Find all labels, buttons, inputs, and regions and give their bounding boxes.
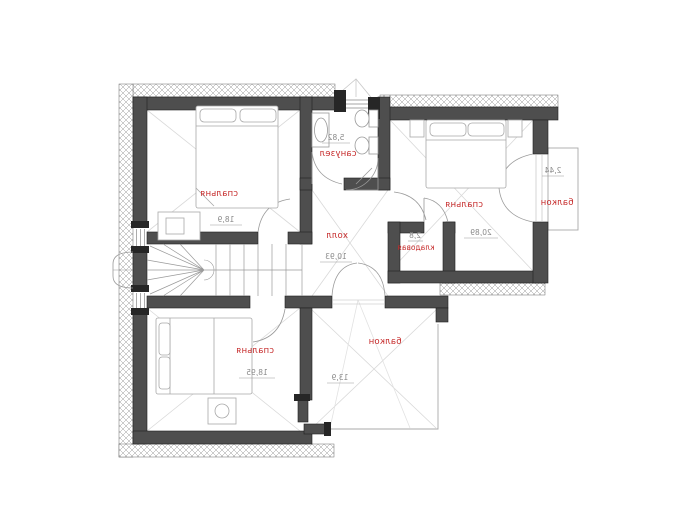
washbasin [312,113,329,147]
area-storage: 2,8 [409,231,421,240]
floor-plan-canvas: спальня 18,9 санузел 5,82 спальня 20,89 … [0,0,700,525]
area-bathroom: 5,82 [327,133,344,142]
area-balcony-bottom: 13,9 [331,373,348,382]
left-window-upper [131,221,149,253]
bed-top-right [410,120,522,188]
staircase [147,244,302,296]
floor-plan-drawing: спальня 18,9 санузел 5,82 спальня 20,89 … [0,0,700,525]
door-terrace-double [332,263,385,296]
area-bedroom-bottom-left: 18,95 [246,368,268,377]
nightstand-bottom-left [208,398,236,424]
label-bedroom-bottom-left: спальня [236,346,274,356]
toilet [355,110,378,127]
label-hall: холл [326,231,348,241]
nightstand-left [410,120,424,137]
door-bedroom-top-right [394,192,426,220]
area-bedroom-top-left: 18,9 [217,215,234,224]
desk-top-left [158,212,200,240]
label-balcony-bottom: балкон [369,337,402,347]
label-bathroom: санузел [319,149,356,159]
door-bedroom-bottom-left [253,309,285,342]
left-window-lower [131,285,149,315]
label-balcony-right: балкон [541,198,574,208]
label-bedroom-top-left: спальня [200,189,238,199]
area-balcony-right: 2,44 [544,166,561,175]
bed-bottom-left [156,318,252,394]
door-storage [424,198,448,222]
bidet [355,137,378,154]
label-bedroom-top-right: спальня [445,200,483,210]
label-storage: кладовая [397,243,434,252]
area-hall: 10,93 [325,252,347,261]
balcony-right-outline [548,148,578,230]
area-bedroom-top-right: 20,89 [470,228,492,237]
nightstand-right [508,120,522,137]
